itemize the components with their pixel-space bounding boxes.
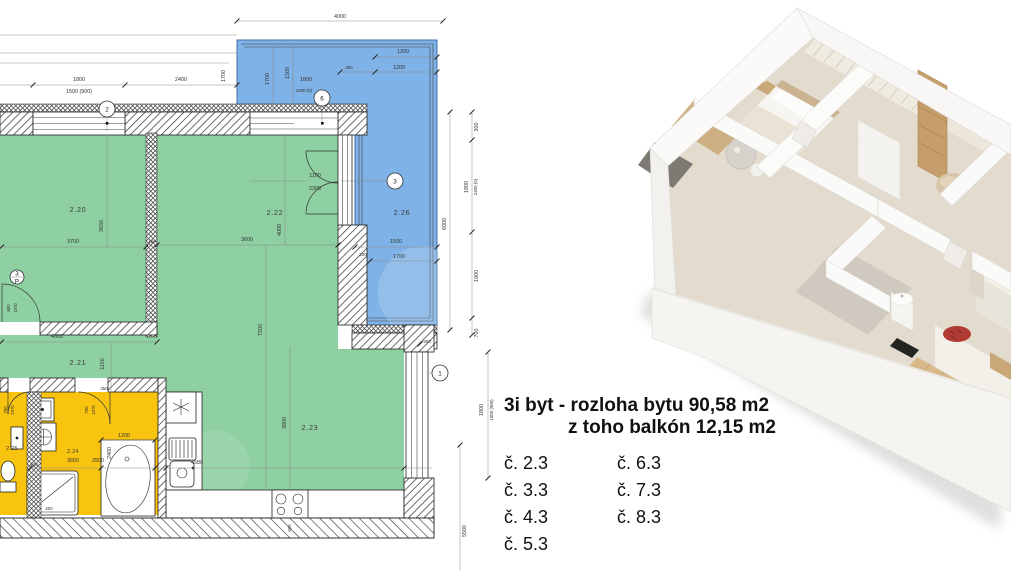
hall-2-21-area [0, 335, 166, 378]
stove [272, 490, 308, 518]
dim-label: 4580 [191, 460, 203, 466]
dim-label: 1200 [397, 49, 409, 55]
dim-label: 1200 [393, 65, 405, 71]
dim-label: 1800 [464, 181, 470, 193]
dim-label: 1500 [285, 67, 291, 79]
marker-label: 2 [105, 107, 109, 114]
dim-label: 800 [6, 304, 11, 312]
dim-label: 200 [359, 252, 367, 257]
dim-label: 1800 [300, 77, 312, 83]
insulation-strip [0, 104, 367, 112]
partition-wall [27, 392, 41, 518]
dim-label: 150 [148, 239, 156, 244]
wall [30, 378, 75, 392]
dim-label: 3650 [99, 220, 105, 232]
dim-label: 1700 [393, 254, 405, 260]
dim-label: 3600 [241, 237, 253, 243]
marker-label: 3 [393, 179, 397, 186]
room-2-20-area [0, 135, 146, 322]
partition-wall [146, 133, 157, 337]
room-label-2-21: 2.21 [70, 358, 87, 367]
room-label-2-20: 2.20 [70, 205, 87, 214]
dim-label: 300 [474, 123, 480, 132]
exterior-wall [0, 518, 434, 538]
dim-label: 6000 [442, 218, 448, 230]
dim-label: 3800 [282, 417, 288, 429]
unit-item: č. 6.3 [617, 452, 661, 479]
marker-label: P [15, 279, 19, 286]
dim-label: 700 [3, 406, 8, 414]
balcony-door-3 [338, 135, 352, 225]
unit-item: č. 2.3 [504, 452, 617, 479]
dim-label: 4000 [334, 14, 346, 20]
dim-label: 1700 [221, 70, 227, 82]
apartment-info: 3i byt - rozloha bytu 90,58 m2 z toho ba… [504, 395, 776, 560]
dim-label: 1970 [91, 405, 96, 415]
dim-label: 3650 [67, 458, 79, 464]
dim-label: 1200 [118, 433, 130, 439]
unit-item: č. 5.3 [504, 533, 617, 560]
unit-list: č. 2.3 č. 3.3 č. 4.3 č. 5.3 č. 6.3 č. 7.… [504, 452, 776, 560]
room-label-2-25: 2.25 [6, 446, 18, 452]
marker-label: 1 [438, 371, 442, 378]
wall [158, 378, 166, 518]
dim-label: 1800 [479, 404, 485, 416]
dim-label: 600 [287, 524, 292, 532]
room-label-2-24: 2.24 [67, 449, 79, 455]
dim-label: 2400 (0) [296, 88, 313, 93]
apartment-title-line2: z toho balkón 12,15 m2 [504, 417, 776, 439]
dim-label: 1500 (900) [66, 89, 92, 95]
dim-label: 1500 [390, 239, 402, 245]
unit-list-col2: č. 6.3 č. 7.3 č. 8.3 [617, 452, 661, 560]
dim-label: 1800 [73, 77, 85, 83]
marker-label: 6 [320, 96, 324, 103]
dim-label: 2400 (0) [473, 178, 478, 195]
dim-label: 4000 [51, 334, 63, 340]
dim-label: 2300 [309, 186, 321, 192]
wall [338, 225, 367, 325]
wall [125, 112, 250, 135]
dim-label: 2500 [92, 458, 104, 464]
floor-plan: 4000 1800 1500 (900) 2400 1700 1200 300 … [0, 14, 494, 570]
unit-item: č. 8.3 [617, 506, 661, 533]
dim-label: 300 [345, 65, 353, 70]
screenshot: 4000 1800 1500 (900) 2400 1700 1200 300 … [0, 0, 1011, 570]
dim-label: 7200 [258, 324, 264, 336]
dim-label: 2400 [175, 77, 187, 83]
dim-label: 1500 (900) [489, 399, 494, 421]
dim-label: 350 [100, 386, 108, 391]
dim-label: 5500 [462, 525, 468, 537]
dim-label: 200 [45, 506, 53, 511]
red-rug [943, 326, 971, 342]
dim-label: 1900 [474, 270, 480, 282]
unit-item: č. 4.3 [504, 506, 617, 533]
unit-item: č. 3.3 [504, 479, 617, 506]
unit-list-col1: č. 2.3 č. 3.3 č. 4.3 č. 5.3 [504, 452, 617, 560]
dim-label: 4000 [277, 224, 283, 236]
watermark [378, 246, 470, 338]
dim-label: 700 [84, 406, 89, 414]
room-label-2-26: 2.26 [394, 208, 411, 217]
dim-label: 1100 [309, 173, 321, 179]
dim-label: 1970 [13, 303, 18, 313]
wall [108, 378, 158, 392]
dim-label: 3700 [67, 239, 79, 245]
dim-label: 1970 [10, 405, 15, 415]
wall [338, 112, 367, 135]
room-label-2-23: 2.23 [302, 423, 319, 432]
wall [404, 478, 434, 518]
dim-label: 700 [474, 329, 480, 338]
room-label-2-22: 2.22 [267, 208, 284, 217]
dim-label: 1700 [265, 73, 271, 85]
wall [0, 378, 8, 392]
wall [0, 112, 33, 135]
apartment-title-line1: 3i byt - rozloha bytu 90,58 m2 [504, 395, 776, 417]
dim-label: 1150 [100, 358, 106, 370]
dim-label: 100 [30, 462, 38, 467]
unit-item: č. 7.3 [617, 479, 661, 506]
toilet [1, 461, 15, 481]
marker-label: 3 [15, 271, 19, 278]
dim-label: 2400 [107, 447, 113, 459]
room-2-23-right-area [338, 349, 404, 490]
dim-label: 500 [423, 339, 431, 344]
